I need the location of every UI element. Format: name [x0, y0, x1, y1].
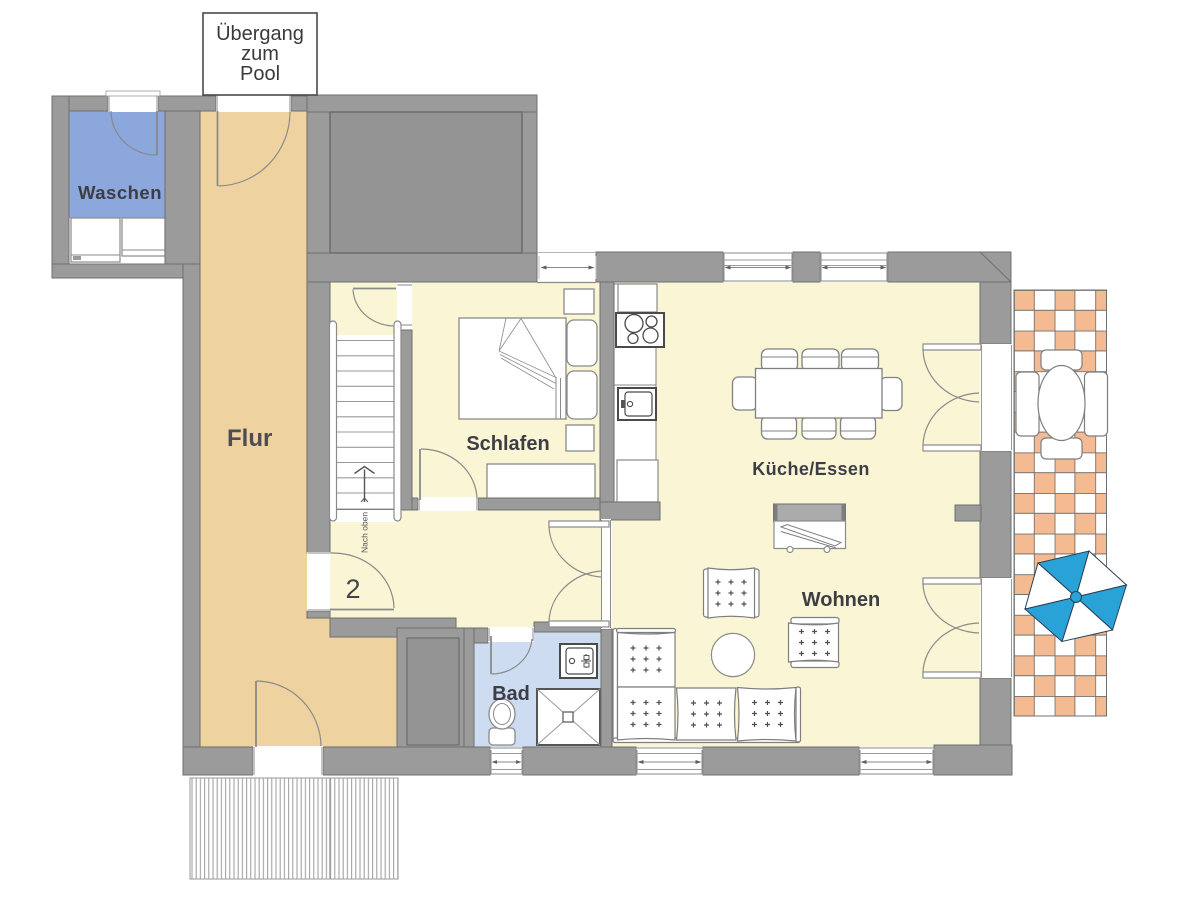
- svg-text:Pool: Pool: [240, 63, 280, 85]
- svg-text:Nach oben: Nach oben: [360, 512, 370, 553]
- svg-text:Übergang: Übergang: [216, 23, 304, 45]
- svg-text:zum: zum: [241, 43, 279, 65]
- svg-text:Flur: Flur: [227, 425, 272, 452]
- svg-text:Waschen: Waschen: [78, 182, 162, 203]
- svg-text:Wohnen: Wohnen: [802, 589, 881, 611]
- svg-text:Bad: Bad: [492, 683, 530, 705]
- svg-text:Schlafen: Schlafen: [466, 433, 549, 455]
- svg-text:2: 2: [345, 574, 360, 604]
- svg-text:Küche/Essen: Küche/Essen: [752, 459, 869, 479]
